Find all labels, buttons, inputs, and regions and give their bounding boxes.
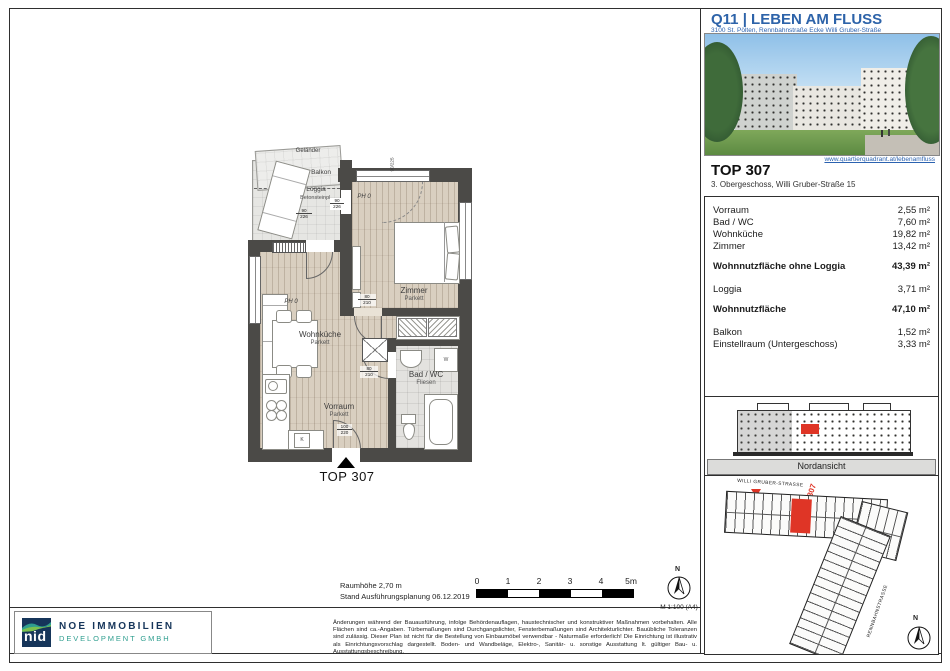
- chair: [276, 310, 292, 323]
- elevation-base: [733, 452, 913, 456]
- installation-shaft: [362, 338, 388, 362]
- scale-tick-label: 0: [471, 576, 483, 586]
- row-label: Bad / WC: [713, 217, 754, 228]
- row-label: Wohnnutzfläche: [713, 304, 786, 315]
- scale-tick-label: 4: [595, 576, 607, 586]
- tall-cabinet: [352, 246, 361, 290]
- parapet-window: [272, 242, 306, 253]
- scale-segment: [602, 590, 633, 597]
- window: [459, 202, 472, 280]
- north-label: N: [675, 566, 680, 573]
- room-floor-bad: Fliesen: [404, 380, 448, 386]
- washbasin: [400, 350, 422, 368]
- room-label-zimmer: Zimmer: [392, 286, 436, 295]
- scale-tick-label: 5m: [622, 576, 640, 586]
- scale-bar: [476, 589, 634, 598]
- pillow: [445, 252, 460, 280]
- table-row: Vorraum2,55 m²: [713, 205, 930, 216]
- row-label: Balkon: [713, 327, 742, 338]
- table-row: Balkon1,52 m²: [713, 327, 930, 338]
- room-label-bad: Bad / WC: [400, 370, 452, 379]
- row-label: Zimmer: [713, 241, 745, 252]
- room-label-vorraum: Vorraum: [316, 402, 362, 411]
- north-arrow-icon: [666, 575, 692, 601]
- elevation-drawing: Nordansicht: [704, 396, 939, 477]
- row-label: Vorraum: [713, 205, 749, 216]
- scale-segment: [477, 590, 508, 597]
- room-floor-wohnkueche: Parkett: [300, 340, 340, 346]
- table-row: Einstellraum (Untergeschoss)3,33 m²: [713, 339, 930, 350]
- logo-mark-text: nid: [24, 628, 47, 644]
- north-arrow-icon: [906, 625, 932, 651]
- row-value: 19,82 m²: [893, 229, 931, 240]
- scale-tick-label: 1: [502, 576, 514, 586]
- dim-zimmer-window: 90226: [330, 198, 344, 210]
- row-label: Einstellraum (Untergeschoss): [713, 339, 838, 350]
- fridge: K: [294, 433, 310, 448]
- door-leaf: [306, 252, 307, 278]
- unit-subtitle: 3. Obergeschoss, Willi Gruber-Straße 15: [711, 180, 856, 189]
- pillow: [445, 225, 460, 253]
- dim-entry-door: 100220: [337, 424, 352, 436]
- scale-segment: [539, 590, 570, 597]
- wall: [340, 160, 352, 316]
- row-value: 3,33 m²: [898, 339, 930, 350]
- row-label: Loggia: [713, 284, 742, 295]
- floor-plan-unit-label: TOP 307: [300, 469, 394, 484]
- north-label: N: [913, 615, 918, 622]
- table-row: Loggia3,71 m²: [713, 284, 930, 295]
- logo-mark: nid: [22, 618, 51, 647]
- unit-title: TOP 307: [711, 162, 771, 179]
- entrance-marker-icon: [337, 457, 355, 468]
- ph-label: PH 0: [355, 194, 373, 200]
- bathtub-inner: [429, 399, 453, 445]
- scale-segment: [508, 590, 539, 597]
- door-opening: [354, 308, 382, 316]
- highlighted-unit: [801, 424, 819, 434]
- room-label-wohnkueche: Wohnküche: [292, 330, 348, 339]
- sink-bowl: [268, 381, 278, 391]
- person: [888, 129, 890, 136]
- room-label-balkon: Balkon: [306, 169, 336, 176]
- window: [249, 256, 261, 324]
- column-divider: [700, 8, 701, 653]
- project-title: Q11 | LEBEN AM FLUSS: [711, 11, 937, 28]
- dim-top-window: 90/225: [390, 152, 395, 178]
- door-opening: [306, 240, 334, 252]
- floor-plan: K W Geländer Balkon Loggia Betonsteinpl.…: [0, 0, 700, 607]
- scale-tick-label: 3: [564, 576, 576, 586]
- ph-label: PH 0: [282, 299, 300, 305]
- room-floor-vorraum: Parkett: [320, 412, 358, 418]
- cooktop-burner: [276, 410, 287, 421]
- scale-segment: [571, 590, 602, 597]
- site-highlighted-unit: [790, 498, 812, 533]
- wall: [248, 448, 472, 462]
- logo-company-name: NOE IMMOBILIEN: [59, 621, 174, 632]
- table-row: Bad / WC7,60 m²: [713, 217, 930, 228]
- disclaimer-text: Änderungen während der Bauausführung, in…: [333, 620, 697, 656]
- wardrobe-door: [398, 318, 427, 337]
- dim-bad-door: 80210: [360, 366, 378, 378]
- row-value: 7,60 m²: [898, 217, 930, 228]
- building-rendering: [704, 33, 940, 156]
- table-row-total: Wohnnutzfläche47,10 m²: [713, 304, 930, 315]
- scale-note: M 1:100 (A4): [650, 604, 708, 611]
- row-label: Wohnnutzfläche ohne Loggia: [713, 261, 845, 272]
- logo-company-subtitle: DEVELOPMENT GMBH: [59, 634, 171, 643]
- elevation-caption-band: Nordansicht: [707, 459, 936, 475]
- table-row: Zimmer13,42 m²: [713, 241, 930, 252]
- scale-tick-label: 2: [533, 576, 545, 586]
- plan-sheet: Q11 | LEBEN AM FLUSS 3100 St. Pölten, Re…: [0, 0, 950, 671]
- row-value: 43,39 m²: [892, 261, 930, 272]
- washing-machine: W: [434, 348, 458, 372]
- door-leaf: [333, 420, 334, 448]
- company-logo: nid NOE IMMOBILIEN DEVELOPMENT GMBH: [14, 611, 212, 654]
- footer-divider: [9, 607, 700, 608]
- dim-loggia-door: 90226: [296, 208, 312, 220]
- door-opening: [388, 352, 396, 378]
- chair: [296, 365, 312, 378]
- plan-status-note: Stand Ausführungsplanung 06.12.2019: [340, 592, 470, 601]
- site-plan: WILLI GRUBER-STRASSE 307 RENNBAHNSTRASSE…: [704, 475, 939, 655]
- table-row-total: Wohnnutzfläche ohne Loggia43,39 m²: [713, 261, 930, 272]
- row-value: 3,71 m²: [898, 284, 930, 295]
- row-label: Wohnküche: [713, 229, 763, 240]
- row-value: 47,10 m²: [892, 304, 930, 315]
- row-value: 2,55 m²: [898, 205, 930, 216]
- room-floor-zimmer: Parkett: [396, 296, 432, 302]
- wardrobe-door: [428, 318, 457, 337]
- row-value: 1,52 m²: [898, 327, 930, 338]
- room-label-loggia: Loggia: [298, 186, 334, 193]
- person: [881, 130, 883, 137]
- chair: [296, 310, 312, 323]
- area-table: Vorraum2,55 m² Bad / WC7,60 m² Wohnküche…: [704, 196, 939, 398]
- dim-zimmer-door: 80210: [358, 294, 376, 306]
- elevation-left-shade: [738, 411, 792, 452]
- table-row: Wohnküche19,82 m²: [713, 229, 930, 240]
- row-value: 13,42 m²: [893, 241, 931, 252]
- room-height-note: Raumhöhe 2,70 m: [340, 581, 402, 590]
- room-label-gelaender: Geländer: [288, 148, 328, 154]
